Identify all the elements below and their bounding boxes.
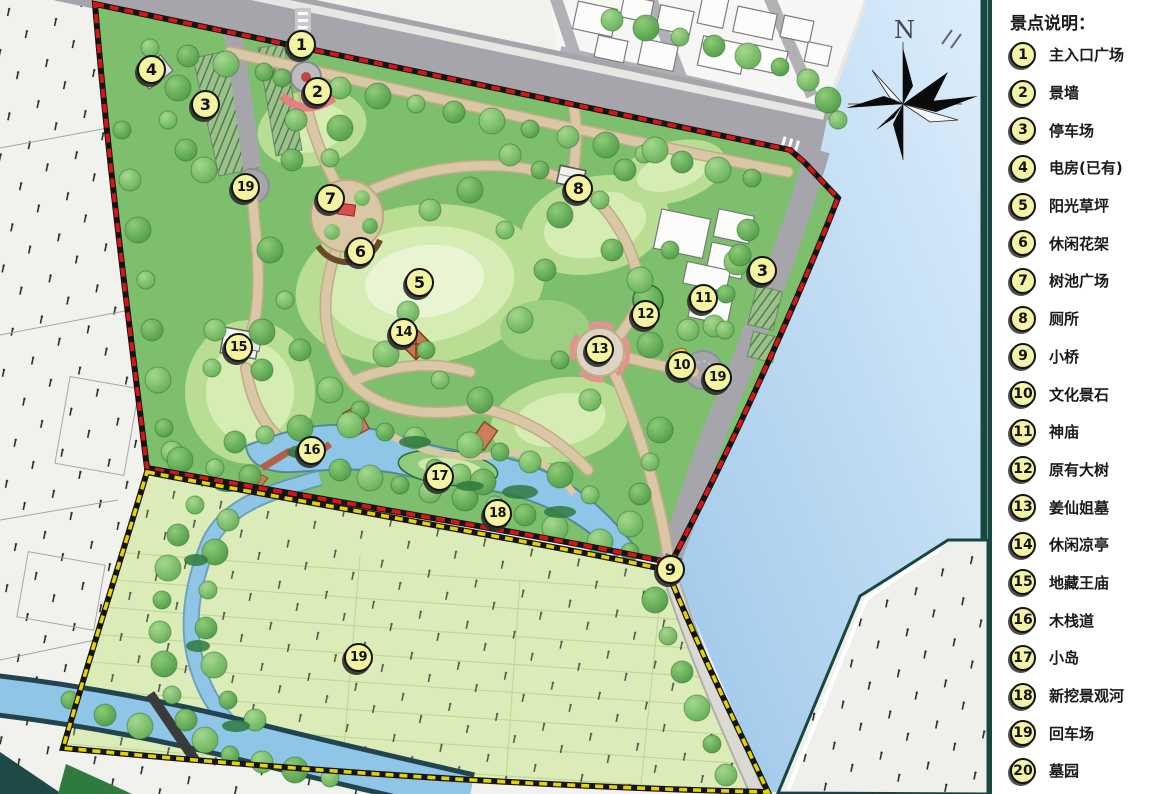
legend-item-number-badge: 5	[1010, 193, 1036, 219]
legend-item: 15 地藏王庙	[1010, 564, 1168, 602]
map-marker-1: 1	[287, 30, 316, 59]
site-plan-screenshot: N 1234197658141531112131019161718919 景点说…	[0, 0, 1168, 794]
map-marker-19: 19	[344, 643, 373, 672]
legend-item: 4 电房(已有)	[1010, 149, 1168, 187]
legend-item: 13 姜仙姐墓	[1010, 488, 1168, 526]
legend-item: 18 新挖景观河	[1010, 677, 1168, 715]
legend-item-label: 主入口广场	[1049, 44, 1124, 65]
map-marker-19: 19	[703, 363, 732, 392]
legend-title: 景点说明：	[1010, 9, 1168, 34]
legend-item-number-badge: 9	[1010, 343, 1036, 369]
map-marker-15: 15	[224, 333, 253, 362]
legend-item-number-badge: 10	[1010, 381, 1036, 407]
map-marker-12: 12	[631, 300, 660, 329]
legend-item-number-badge: 8	[1010, 306, 1036, 332]
legend-item-number-badge: 14	[1010, 532, 1036, 558]
legend-list: 1 主入口广场 2 景墙 3 停车场 4 电房(已有) 5 阳光草坪	[992, 36, 1168, 790]
legend-item-number-badge: 12	[1010, 456, 1036, 482]
legend-item-label: 原有大树	[1049, 459, 1109, 480]
legend-item-number-badge: 16	[1010, 607, 1036, 633]
legend-item-number-badge: 4	[1010, 155, 1036, 181]
legend-item: 2 景墙	[1010, 74, 1168, 112]
map-marker-4: 4	[137, 55, 166, 84]
legend-item: 12 原有大树	[1010, 451, 1168, 489]
map-marker-6: 6	[346, 237, 375, 266]
legend-item-number-badge: 17	[1010, 645, 1036, 671]
legend-item-label: 神庙	[1049, 421, 1079, 442]
legend-item-label: 景墙	[1049, 82, 1079, 103]
legend-item-number-badge: 7	[1010, 268, 1036, 294]
legend-item: 19 回车场	[1010, 714, 1168, 752]
legend-item-number-badge: 2	[1010, 80, 1036, 106]
legend-item-number-badge: 3	[1010, 117, 1036, 143]
legend-item-label: 地藏王庙	[1049, 572, 1109, 593]
legend-item: 6 休闲花架	[1010, 224, 1168, 262]
map-marker-8: 8	[564, 174, 593, 203]
legend-item-label: 姜仙姐墓	[1049, 497, 1109, 518]
map-marker-13: 13	[585, 335, 614, 364]
legend-item-label: 木栈道	[1049, 610, 1094, 631]
legend-item-label: 停车场	[1049, 120, 1094, 141]
map-marker-19: 19	[231, 173, 260, 202]
map-markers-layer: 1234197658141531112131019161718919	[0, 0, 990, 794]
legend-item: 8 厕所	[1010, 300, 1168, 338]
legend-item: 3 停车场	[1010, 111, 1168, 149]
legend-item-number-badge: 11	[1010, 419, 1036, 445]
map-marker-3: 3	[191, 90, 220, 119]
legend-item-number-badge: 20	[1010, 758, 1036, 784]
legend-item: 10 文化景石	[1010, 375, 1168, 413]
legend-item-label: 回车场	[1049, 723, 1094, 744]
legend-item-label: 休闲凉亭	[1049, 534, 1109, 555]
map-marker-16: 16	[297, 436, 326, 465]
legend-item: 14 休闲凉亭	[1010, 526, 1168, 564]
map-marker-7: 7	[316, 184, 345, 213]
map-marker-17: 17	[425, 462, 454, 491]
map-marker-18: 18	[483, 499, 512, 528]
map-marker-10: 10	[667, 351, 696, 380]
legend-item-label: 文化景石	[1049, 384, 1109, 405]
legend-item: 7 树池广场	[1010, 262, 1168, 300]
legend-item-label: 树池广场	[1049, 270, 1109, 291]
legend-item: 9 小桥	[1010, 338, 1168, 376]
legend-item: 20 墓园	[1010, 752, 1168, 790]
map-marker-3: 3	[748, 256, 777, 285]
map-marker-5: 5	[405, 268, 434, 297]
legend-item-number-badge: 6	[1010, 230, 1036, 256]
legend-item-label: 小岛	[1049, 647, 1079, 668]
map-marker-9: 9	[656, 555, 685, 584]
legend-item-number-badge: 15	[1010, 569, 1036, 595]
legend-item-number-badge: 19	[1010, 720, 1036, 746]
legend-item-label: 墓园	[1049, 760, 1079, 781]
legend-item-label: 休闲花架	[1049, 233, 1109, 254]
legend-item-label: 电房(已有)	[1049, 157, 1123, 178]
legend-item-number-badge: 1	[1010, 42, 1036, 68]
legend-item-label: 新挖景观河	[1049, 685, 1124, 706]
map-marker-2: 2	[303, 77, 332, 106]
legend-item-number-badge: 18	[1010, 683, 1036, 709]
legend-panel: 景点说明： 1 主入口广场 2 景墙 3 停车场 4 电房(已有)	[988, 0, 1168, 794]
legend-item-number-badge: 13	[1010, 494, 1036, 520]
legend-item: 17 小岛	[1010, 639, 1168, 677]
legend-item-label: 小桥	[1049, 346, 1079, 367]
legend-item-label: 阳光草坪	[1049, 195, 1109, 216]
legend-item: 11 神庙	[1010, 413, 1168, 451]
legend-item: 5 阳光草坪	[1010, 187, 1168, 225]
map-marker-14: 14	[389, 318, 418, 347]
legend-item-label: 厕所	[1049, 308, 1079, 329]
map-marker-11: 11	[689, 284, 718, 313]
legend-item: 16 木栈道	[1010, 601, 1168, 639]
legend-item: 1 主入口广场	[1010, 36, 1168, 74]
